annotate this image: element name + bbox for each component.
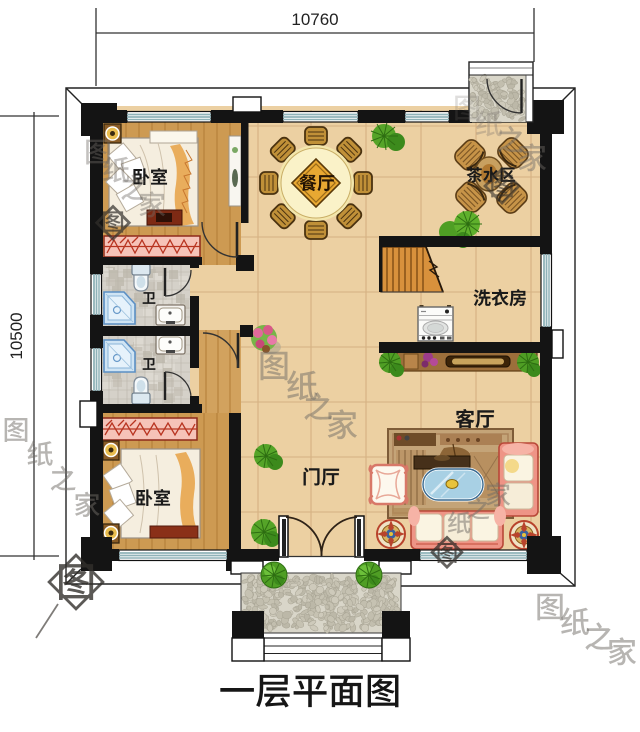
svg-text:10760: 10760: [291, 10, 338, 29]
svg-text:10500: 10500: [7, 312, 26, 359]
